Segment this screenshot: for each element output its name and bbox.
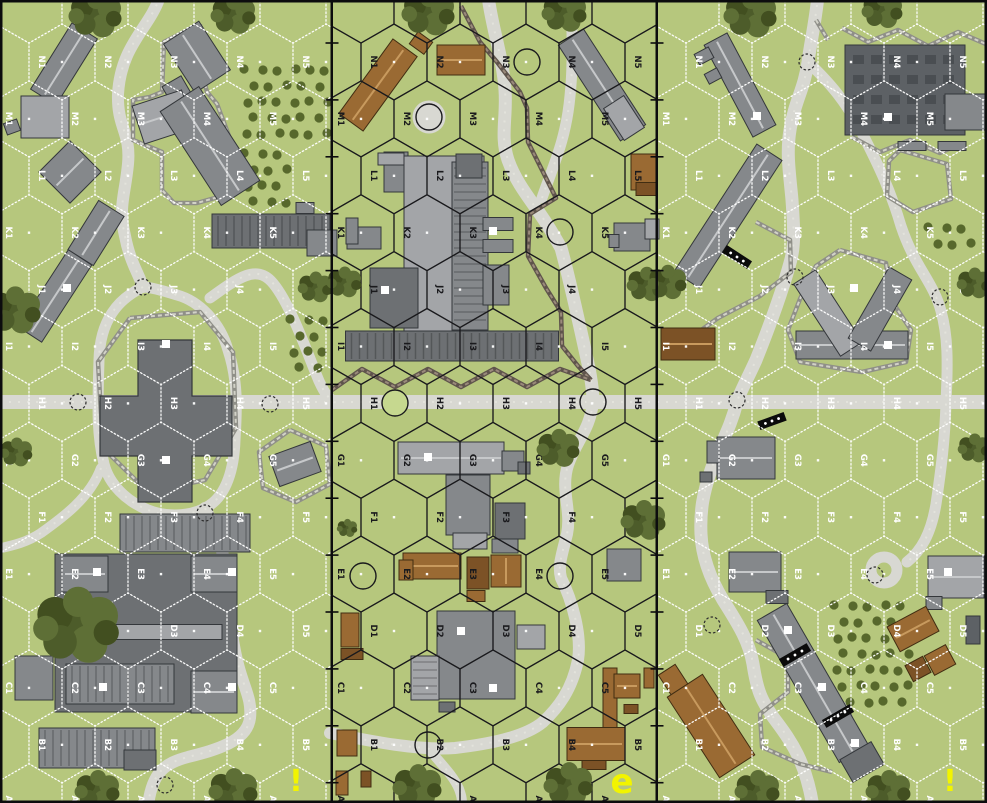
hex-label: K2 xyxy=(726,226,736,239)
hex-label: M5 xyxy=(267,112,277,126)
hex-center-dot xyxy=(393,61,395,63)
hex-label: B3 xyxy=(168,739,178,751)
hex-center-dot xyxy=(850,630,852,632)
orchard-tree xyxy=(865,664,874,673)
hex-center-dot xyxy=(94,459,96,461)
hex-center-dot xyxy=(459,175,461,177)
hex-center-dot xyxy=(718,744,720,746)
orchard-tree xyxy=(281,114,290,123)
building xyxy=(492,539,518,553)
hex-center-dot xyxy=(883,687,885,689)
village-green-ring xyxy=(382,390,408,416)
building-victory-square xyxy=(63,284,71,292)
hex-label: J3 xyxy=(168,284,178,294)
hex-center-dot xyxy=(325,61,327,63)
hex-center-dot xyxy=(61,61,63,63)
hex-label: G1 xyxy=(660,454,670,467)
orchard-tree xyxy=(864,698,873,707)
hex-label: H2 xyxy=(102,397,112,410)
hex-center-dot xyxy=(624,118,626,120)
hex-label: K2 xyxy=(401,226,411,239)
hex-label: D3 xyxy=(168,625,178,638)
hex-label: D3 xyxy=(500,625,510,638)
hex-center-dot xyxy=(259,744,261,746)
hex-center-dot xyxy=(226,232,228,234)
hex-center-dot xyxy=(459,402,461,404)
orchard-tree xyxy=(897,697,906,706)
hex-center-dot xyxy=(949,118,951,120)
orchard-tree xyxy=(296,81,305,90)
building xyxy=(707,441,719,463)
hex-center-dot xyxy=(193,630,195,632)
hex-label: I2 xyxy=(69,342,79,351)
hex-label: K4 xyxy=(201,226,211,239)
orchard-tree xyxy=(290,98,299,107)
hex-label: I2 xyxy=(401,342,411,351)
hex-label: B5 xyxy=(957,739,967,751)
hex-center-dot xyxy=(127,175,129,177)
hex-label: E4 xyxy=(533,568,543,580)
hex-center-dot xyxy=(982,516,984,518)
hex-center-dot xyxy=(525,288,527,290)
hex-label: N4 xyxy=(891,55,901,68)
hex-center-dot xyxy=(916,744,918,746)
hex-label: C5 xyxy=(924,682,934,694)
hex-center-dot xyxy=(751,118,753,120)
orchard-tree xyxy=(893,666,902,675)
orchard-tree xyxy=(861,633,870,642)
hex-label: H3 xyxy=(500,397,510,410)
hex-center-dot xyxy=(160,118,162,120)
hex-label: E1 xyxy=(660,568,670,580)
hex-label: L1 xyxy=(368,170,378,181)
hex-label: H2 xyxy=(434,397,444,410)
hex-label: C1 xyxy=(660,682,670,694)
hex-center-dot xyxy=(850,402,852,404)
hex-center-dot xyxy=(193,516,195,518)
hex-label: G3 xyxy=(792,454,802,467)
hex-label: G4 xyxy=(858,454,868,467)
hex-center-dot xyxy=(393,288,395,290)
hex-label: M4 xyxy=(201,112,211,126)
orchard-tree xyxy=(257,180,266,189)
hex-center-dot xyxy=(591,288,593,290)
hex-center-dot xyxy=(393,175,395,177)
hex-center-dot xyxy=(325,175,327,177)
building xyxy=(341,613,359,647)
orchard-tree xyxy=(838,648,847,657)
orchard-tree xyxy=(314,113,323,122)
orchard-tree xyxy=(947,240,956,249)
hex-center-dot xyxy=(949,232,951,234)
hex-label: J2 xyxy=(102,284,112,294)
hex-label: E1 xyxy=(335,568,345,580)
hex-center-dot xyxy=(259,630,261,632)
hex-center-dot xyxy=(193,744,195,746)
orchard-tree xyxy=(313,363,322,372)
hex-center-dot xyxy=(916,61,918,63)
hex-center-dot xyxy=(127,402,129,404)
orchard-tree xyxy=(837,682,846,691)
building-victory-square xyxy=(884,113,892,121)
building xyxy=(644,668,654,688)
building xyxy=(517,625,545,649)
hex-center-dot xyxy=(817,459,819,461)
hex-center-dot xyxy=(426,345,428,347)
building xyxy=(624,705,638,714)
hex-label: K5 xyxy=(924,226,934,239)
hex-label: G3 xyxy=(467,454,477,467)
hex-label: F5 xyxy=(957,511,967,523)
orchard-tree xyxy=(853,618,862,627)
hex-center-dot xyxy=(28,118,30,120)
orchard-tree xyxy=(933,239,942,248)
hex-center-dot xyxy=(259,402,261,404)
hex-label: C3 xyxy=(467,682,477,694)
hex-center-dot xyxy=(591,516,593,518)
hex-center-dot xyxy=(525,61,527,63)
marker-exclamation: ! xyxy=(943,764,957,799)
building xyxy=(411,656,439,700)
hex-center-dot xyxy=(292,573,294,575)
hex-center-dot xyxy=(558,345,560,347)
hex-label: J3 xyxy=(500,284,510,294)
building xyxy=(346,218,358,244)
hex-center-dot xyxy=(360,687,362,689)
hex-label: C3 xyxy=(792,682,802,694)
orchard-tree xyxy=(295,112,304,121)
hex-label: D1 xyxy=(693,625,703,638)
hex-center-dot xyxy=(784,175,786,177)
board-divider xyxy=(331,0,334,803)
hex-label: N5 xyxy=(632,55,642,68)
hex-label: K1 xyxy=(660,226,670,239)
hex-center-dot xyxy=(226,687,228,689)
orchard-tree xyxy=(243,98,252,107)
building-victory-square xyxy=(818,683,826,691)
building xyxy=(582,761,606,770)
hex-label: B3 xyxy=(500,739,510,751)
hex-center-dot xyxy=(624,459,626,461)
hex-label: K4 xyxy=(533,226,543,239)
hex-label: K3 xyxy=(792,226,802,239)
hex-center-dot xyxy=(817,232,819,234)
building-victory-square xyxy=(162,456,170,464)
hex-label: H4 xyxy=(891,397,901,410)
hex-label: K4 xyxy=(858,226,868,239)
hex-center-dot xyxy=(292,232,294,234)
hex-label: J4 xyxy=(234,284,244,294)
hex-center-dot xyxy=(558,573,560,575)
hex-label: E2 xyxy=(726,568,736,580)
hex-center-dot xyxy=(459,61,461,63)
hex-center-dot xyxy=(558,232,560,234)
orchard-tree xyxy=(272,150,281,159)
hex-label: G4 xyxy=(201,454,211,467)
orchard-tree xyxy=(248,112,257,121)
hex-label: D2 xyxy=(434,625,444,638)
hex-label: F3 xyxy=(500,511,510,523)
orchard-tree xyxy=(289,129,298,138)
hex-label: G2 xyxy=(69,454,79,467)
orchard-tree xyxy=(242,129,251,138)
hex-label: H3 xyxy=(168,397,178,410)
hex-center-dot xyxy=(160,687,162,689)
hex-center-dot xyxy=(393,630,395,632)
hex-center-dot xyxy=(226,573,228,575)
hex-label: H1 xyxy=(36,397,46,410)
orchard-tree xyxy=(903,680,912,689)
orchard-tree xyxy=(872,616,881,625)
hex-center-dot xyxy=(949,459,951,461)
building xyxy=(928,556,984,598)
hex-center-dot xyxy=(61,516,63,518)
hex-center-dot xyxy=(591,402,593,404)
building-victory-square xyxy=(99,683,107,691)
hex-center-dot xyxy=(127,630,129,632)
hex-center-dot xyxy=(784,61,786,63)
hex-label: I1 xyxy=(3,342,13,351)
hex-label: M2 xyxy=(69,112,79,126)
hex-center-dot xyxy=(61,175,63,177)
hex-label: F2 xyxy=(102,511,112,523)
hex-label: C4 xyxy=(533,682,543,694)
hex-center-dot xyxy=(982,744,984,746)
hex-center-dot xyxy=(292,687,294,689)
hex-center-dot xyxy=(292,118,294,120)
orchard-tree xyxy=(267,197,276,206)
hex-label: F4 xyxy=(234,511,244,523)
hex-center-dot xyxy=(193,61,195,63)
building xyxy=(337,730,357,756)
building xyxy=(607,549,641,581)
orchard-tree xyxy=(258,149,267,158)
hex-label: M4 xyxy=(858,112,868,126)
building-victory-square xyxy=(489,684,497,692)
hex-label: K3 xyxy=(135,226,145,239)
hex-label: M2 xyxy=(401,112,411,126)
hex-center-dot xyxy=(492,459,494,461)
hex-center-dot xyxy=(982,61,984,63)
hex-center-dot xyxy=(61,402,63,404)
hex-center-dot xyxy=(751,687,753,689)
hex-label: M1 xyxy=(335,112,345,126)
building-victory-square xyxy=(162,340,170,348)
hex-label: D5 xyxy=(300,625,310,638)
hex-label: L5 xyxy=(957,170,967,181)
hex-label: I3 xyxy=(135,342,145,351)
hex-center-dot xyxy=(226,118,228,120)
hex-center-dot xyxy=(259,61,261,63)
hex-center-dot xyxy=(883,459,885,461)
building xyxy=(62,556,108,592)
hex-label: B1 xyxy=(36,739,46,751)
hex-center-dot xyxy=(685,232,687,234)
hex-label: N3 xyxy=(500,55,510,68)
hex-label: L4 xyxy=(234,170,244,181)
hex-center-dot xyxy=(558,118,560,120)
building xyxy=(296,203,314,214)
hex-label: E3 xyxy=(135,568,145,580)
hex-label: N3 xyxy=(168,55,178,68)
hex-label: B4 xyxy=(891,739,901,751)
hex-center-dot xyxy=(718,402,720,404)
map-canvas: N1N2N3N4N5M1M2M3M4M5L1L2L3L4L5K1K2K3K4K5… xyxy=(0,0,987,803)
hex-center-dot xyxy=(160,459,162,461)
hex-label: L5 xyxy=(632,170,642,181)
hex-label: K5 xyxy=(599,226,609,239)
marker-letter-e: e xyxy=(610,762,633,802)
hex-label: F4 xyxy=(891,511,901,523)
orchard-tree xyxy=(249,81,258,90)
hex-label: N5 xyxy=(300,55,310,68)
hex-center-dot xyxy=(525,744,527,746)
building xyxy=(191,671,237,713)
hex-label: C1 xyxy=(3,682,13,694)
hex-center-dot xyxy=(360,459,362,461)
hex-label: J1 xyxy=(36,284,46,294)
hex-label: E4 xyxy=(201,568,211,580)
hex-center-dot xyxy=(360,573,362,575)
hex-label: G5 xyxy=(924,454,934,467)
hex-label: J2 xyxy=(434,284,444,294)
hex-label: H5 xyxy=(300,397,310,410)
hex-center-dot xyxy=(160,232,162,234)
orchard-tree xyxy=(315,82,324,91)
hex-center-dot xyxy=(558,687,560,689)
building xyxy=(483,240,513,253)
hex-center-dot xyxy=(127,744,129,746)
hex-label: H2 xyxy=(759,397,769,410)
hex-center-dot xyxy=(751,573,753,575)
hex-label: E5 xyxy=(267,568,277,580)
building xyxy=(945,94,985,130)
orchard-tree xyxy=(880,634,889,643)
hex-label: D2 xyxy=(759,625,769,638)
hex-label: N4 xyxy=(566,55,576,68)
hex-label: N4 xyxy=(234,55,244,68)
building-victory-square xyxy=(424,453,432,461)
hex-center-dot xyxy=(226,459,228,461)
hex-label: I4 xyxy=(201,342,211,351)
hex-label: B1 xyxy=(368,739,378,751)
hex-center-dot xyxy=(393,516,395,518)
building xyxy=(453,533,487,549)
orchard-tree xyxy=(847,632,856,641)
hex-center-dot xyxy=(817,573,819,575)
building-victory-square xyxy=(851,739,859,747)
hex-label: K5 xyxy=(267,226,277,239)
building xyxy=(15,656,53,700)
hex-center-dot xyxy=(426,118,428,120)
hex-label: L3 xyxy=(168,170,178,181)
orchard-tree xyxy=(258,65,267,74)
hex-label: B5 xyxy=(632,739,642,751)
hex-label: E1 xyxy=(3,568,13,580)
hex-label: N3 xyxy=(825,55,835,68)
hex-center-dot xyxy=(982,402,984,404)
building xyxy=(898,142,926,151)
hex-label: M3 xyxy=(792,112,802,126)
hex-center-dot xyxy=(817,345,819,347)
building-victory-square xyxy=(944,568,952,576)
hex-center-dot xyxy=(292,345,294,347)
hex-center-dot xyxy=(94,345,96,347)
hex-label: E3 xyxy=(792,568,802,580)
hex-center-dot xyxy=(193,288,195,290)
hex-label: L2 xyxy=(102,170,112,181)
hex-label: B2 xyxy=(102,739,112,751)
hex-label: E2 xyxy=(401,568,411,580)
building-victory-square xyxy=(457,627,465,635)
hex-label: D4 xyxy=(891,625,901,638)
hex-label: M3 xyxy=(467,112,477,126)
hex-label: M1 xyxy=(3,112,13,126)
hex-label: I1 xyxy=(660,342,670,351)
hex-label: L3 xyxy=(825,170,835,181)
hex-center-dot xyxy=(624,687,626,689)
hex-center-dot xyxy=(751,232,753,234)
orchard-tree xyxy=(879,665,888,674)
hex-center-dot xyxy=(850,61,852,63)
hex-label: M3 xyxy=(135,112,145,126)
hex-label: J1 xyxy=(368,284,378,294)
hex-label: F3 xyxy=(825,511,835,523)
hex-center-dot xyxy=(685,573,687,575)
hex-label: C1 xyxy=(335,682,345,694)
hex-label: M5 xyxy=(924,112,934,126)
hex-center-dot xyxy=(127,288,129,290)
hex-center-dot xyxy=(259,288,261,290)
hex-center-dot xyxy=(426,687,428,689)
hex-label: I3 xyxy=(792,342,802,351)
hex-label: B4 xyxy=(566,739,576,751)
hex-label: N2 xyxy=(102,55,112,68)
orchard-tree xyxy=(889,682,898,691)
orchard-tree xyxy=(271,97,280,106)
hex-label: E4 xyxy=(858,568,868,580)
hex-label: I5 xyxy=(267,342,277,351)
orchard-tree xyxy=(295,331,304,340)
hex-center-dot xyxy=(718,61,720,63)
hex-label: E3 xyxy=(467,568,477,580)
hex-label: J4 xyxy=(566,284,576,294)
orchard-tree xyxy=(271,181,280,190)
hex-label: G5 xyxy=(599,454,609,467)
hex-label: J4 xyxy=(891,284,901,294)
hex-center-dot xyxy=(360,345,362,347)
orchard-tree xyxy=(275,128,284,137)
hex-center-dot xyxy=(61,288,63,290)
building-victory-square xyxy=(228,683,236,691)
hex-center-dot xyxy=(259,516,261,518)
hex-center-dot xyxy=(160,345,162,347)
hex-center-dot xyxy=(292,459,294,461)
hex-label: K1 xyxy=(335,226,345,239)
hex-label: N1 xyxy=(368,55,378,68)
hex-label: H1 xyxy=(368,397,378,410)
building xyxy=(966,616,980,644)
hex-center-dot xyxy=(591,630,593,632)
hex-center-dot xyxy=(817,118,819,120)
hex-label: L1 xyxy=(36,170,46,181)
hex-label: D1 xyxy=(368,625,378,638)
hex-label: I2 xyxy=(726,342,736,351)
hex-label: M4 xyxy=(533,112,543,126)
hex-center-dot xyxy=(525,630,527,632)
hex-center-dot xyxy=(982,175,984,177)
orchard-tree xyxy=(294,362,303,371)
